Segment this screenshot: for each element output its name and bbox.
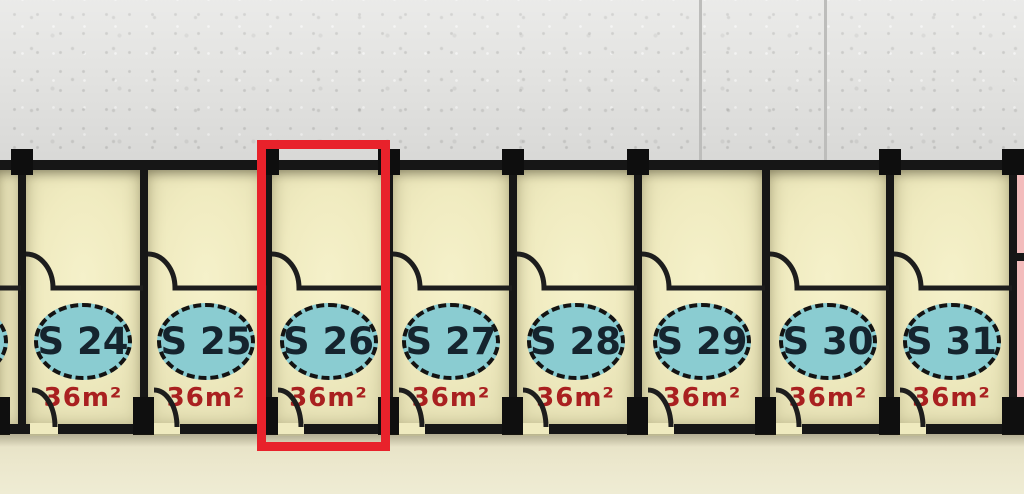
door-arc-top xyxy=(894,254,1012,288)
door-arc-bottom xyxy=(399,390,422,427)
door-arc-bottom xyxy=(776,390,799,427)
wall-block xyxy=(1006,410,1024,435)
floor-plan: S 24 36m² S 25 36m² S 26 36m² S 27 36m² … xyxy=(0,0,1024,494)
wall-block xyxy=(0,397,10,435)
wall-block xyxy=(879,397,900,435)
wall-block xyxy=(755,397,776,435)
wall-block xyxy=(133,397,154,435)
door-arc-top xyxy=(26,254,143,288)
door-arc-bottom xyxy=(900,390,923,427)
door-arc-top xyxy=(393,254,512,288)
door-arc-top xyxy=(642,254,765,288)
door-arc-top xyxy=(517,254,637,288)
wall-block xyxy=(502,397,523,435)
wall-shadow xyxy=(0,434,1024,447)
selected-unit-highlight xyxy=(257,140,390,451)
door-arc-top xyxy=(770,254,889,288)
door-arc-top xyxy=(148,254,267,288)
door-arc-bottom xyxy=(32,390,55,427)
door-arc-bottom xyxy=(523,390,546,427)
door-arc-bottom xyxy=(154,390,177,427)
wall-block xyxy=(627,397,648,435)
doors-and-details-layer xyxy=(0,0,1024,494)
door-arc-bottom xyxy=(648,390,671,427)
